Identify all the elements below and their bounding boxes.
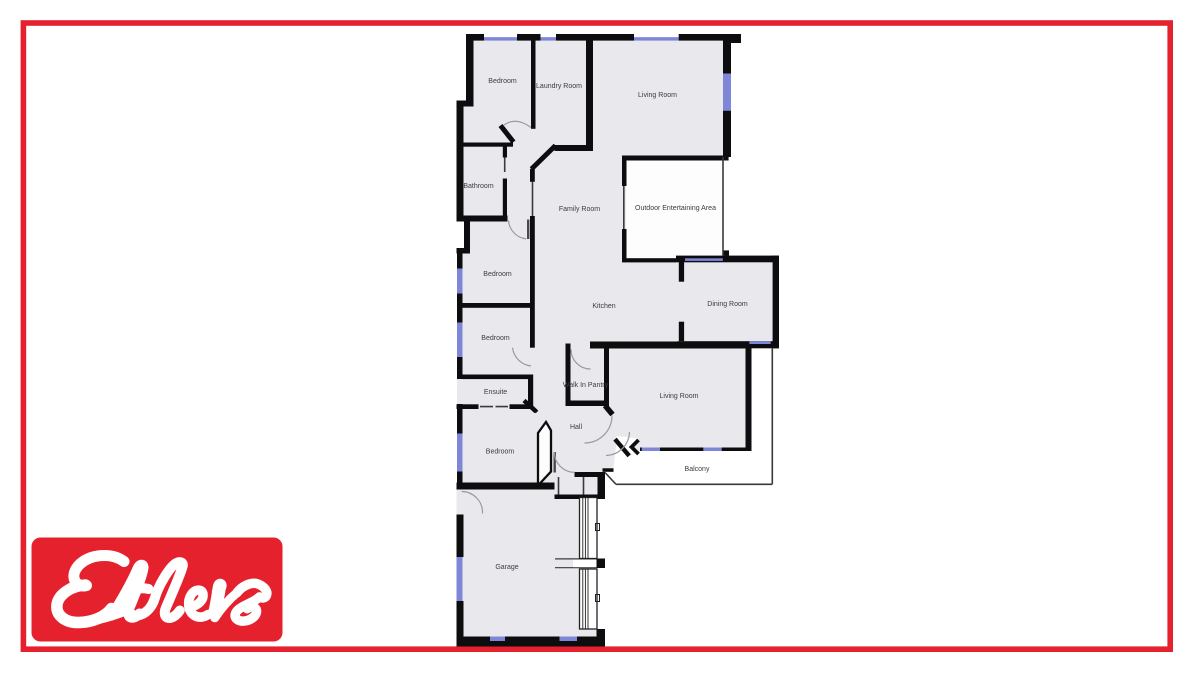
svg-text:Family Room: Family Room	[559, 206, 600, 213]
svg-text:Outdoor Entertaining Area: Outdoor Entertaining Area	[635, 205, 716, 212]
svg-text:Living Room: Living Room	[638, 92, 677, 99]
svg-text:Bedroom: Bedroom	[488, 78, 517, 85]
svg-text:Garage: Garage	[495, 564, 518, 571]
svg-text:Bathroom: Bathroom	[463, 183, 494, 190]
svg-text:Kitchen: Kitchen	[592, 303, 615, 310]
svg-text:Bedroom: Bedroom	[486, 449, 515, 456]
svg-text:Living Room: Living Room	[660, 393, 699, 400]
svg-text:Balcony: Balcony	[685, 466, 710, 473]
svg-text:Ensuite: Ensuite	[484, 389, 507, 396]
svg-text:Bedroom: Bedroom	[481, 335, 510, 342]
svg-text:Hall: Hall	[570, 424, 583, 431]
svg-text:Laundry Room: Laundry Room	[536, 83, 582, 90]
svg-text:Walk In Pantry: Walk In Pantry	[563, 382, 609, 389]
svg-text:Dining Room: Dining Room	[707, 301, 748, 308]
svg-text:Bedroom: Bedroom	[483, 271, 512, 278]
